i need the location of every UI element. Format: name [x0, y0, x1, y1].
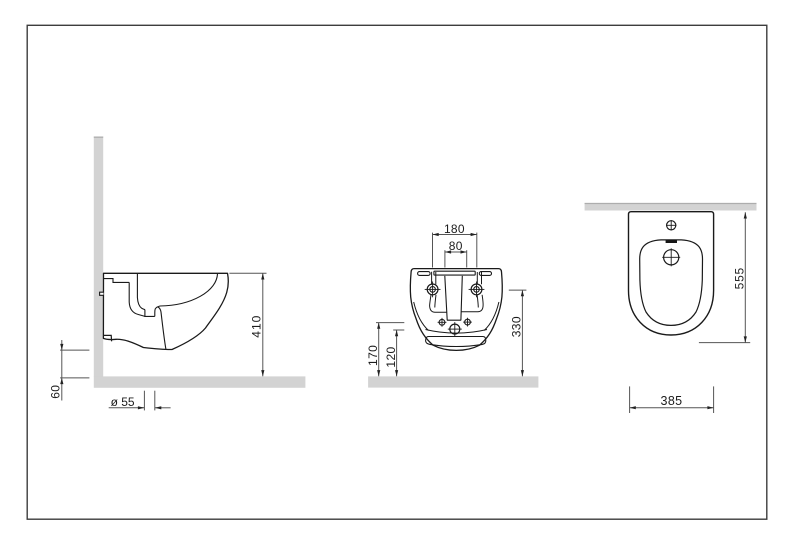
svg-text:80: 80	[449, 239, 463, 253]
svg-text:555: 555	[732, 267, 746, 289]
svg-text:180: 180	[444, 222, 465, 236]
svg-text:385: 385	[660, 394, 682, 408]
svg-text:170: 170	[366, 345, 380, 366]
svg-text:120: 120	[384, 346, 398, 367]
svg-text:330: 330	[510, 316, 524, 337]
svg-text:410: 410	[250, 315, 264, 338]
svg-text:ø 55: ø 55	[111, 395, 135, 409]
svg-text:60: 60	[48, 385, 62, 399]
